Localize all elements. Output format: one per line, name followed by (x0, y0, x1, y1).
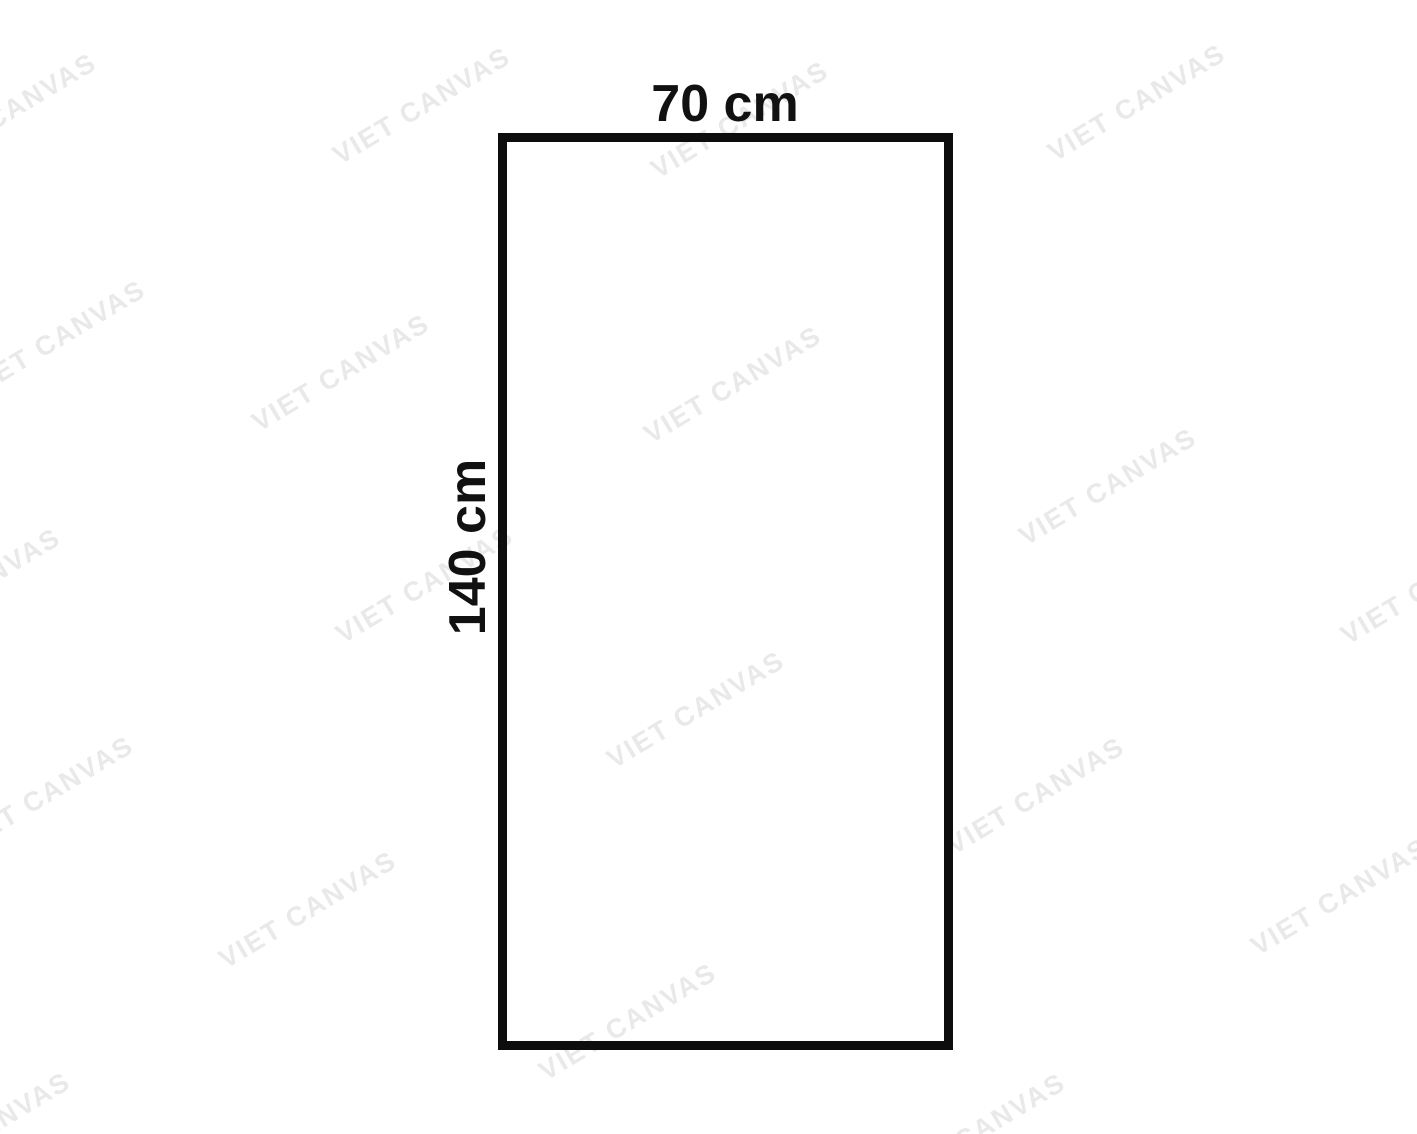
watermark-text: VIET CANVAS (0, 1066, 76, 1134)
watermark-text: VIET CANVAS (328, 41, 517, 171)
rectangle-outline (498, 133, 953, 1050)
watermark-text: VIET CANVAS (942, 731, 1131, 861)
height-dimension-label: 140 cm (438, 459, 498, 635)
watermark-text: VIET CANVAS (1336, 521, 1417, 651)
canvas-size-diagram: VIET CANVASVIET CANVASVIET CANVASVIET CA… (0, 0, 1417, 1134)
watermark-text: VIET CANVAS (214, 845, 403, 975)
watermark-text: VIET CANVAS (1246, 832, 1417, 962)
watermark-text: VIET CANVAS (1043, 38, 1232, 168)
watermark-text: VIET CANVAS (0, 274, 151, 404)
watermark-text: VIET CANVAS (247, 308, 436, 438)
watermark-text: VIET CANVAS (0, 522, 66, 652)
watermark-text: VIET CANVAS (0, 47, 102, 177)
width-dimension-label: 70 cm (651, 74, 798, 134)
watermark-text: VIET CANVAS (883, 1067, 1072, 1134)
watermark-text: VIET CANVAS (0, 730, 139, 860)
watermark-text: VIET CANVAS (1014, 422, 1203, 552)
